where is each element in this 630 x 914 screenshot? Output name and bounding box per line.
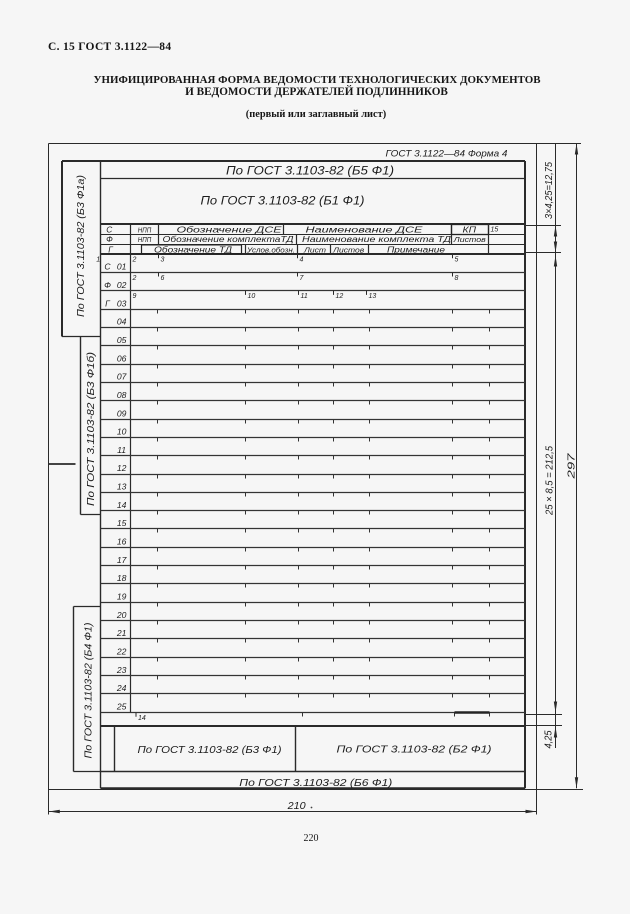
- svg-text:НПП: НПП: [138, 235, 152, 244]
- svg-text:11: 11: [301, 293, 308, 300]
- svg-text:Ф: Ф: [104, 280, 111, 290]
- svg-text:По ГОСТ 3.1103-82 (Б3 Ф1): По ГОСТ 3.1103-82 (Б3 Ф1): [138, 744, 282, 756]
- svg-text:05: 05: [117, 335, 127, 345]
- svg-text:9: 9: [133, 293, 137, 300]
- svg-text:Лист: Лист: [303, 245, 326, 254]
- svg-text:14: 14: [138, 715, 146, 722]
- svg-text:Листов: Листов: [453, 235, 486, 244]
- svg-text:210: 210: [287, 801, 307, 812]
- svg-text:21: 21: [116, 628, 127, 638]
- svg-text:24: 24: [116, 683, 127, 693]
- svg-text:Обозначение ДСЕ: Обозначение ДСЕ: [177, 224, 283, 234]
- svg-text:03: 03: [117, 298, 127, 308]
- svg-text:Г: Г: [105, 298, 111, 308]
- svg-text:С: С: [106, 224, 113, 234]
- svg-text:02: 02: [117, 280, 127, 290]
- svg-text:25 × 8,5 = 212,5: 25 × 8,5 = 212,5: [545, 446, 556, 516]
- svg-text:22: 22: [116, 646, 127, 656]
- svg-text:7: 7: [300, 275, 305, 282]
- svg-text:16: 16: [117, 537, 127, 547]
- svg-text:8: 8: [455, 275, 459, 282]
- svg-text:4: 4: [300, 257, 304, 264]
- svg-text:14: 14: [117, 500, 127, 510]
- svg-text:Обозначение комплектаТД: Обозначение комплектаТД: [163, 235, 295, 244]
- svg-text:С: С: [104, 262, 111, 272]
- svg-text:25: 25: [116, 701, 127, 711]
- svg-text:По ГОСТ 3.1103-82 (Б2 Ф1): По ГОСТ 3.1103-82 (Б2 Ф1): [337, 744, 492, 756]
- svg-text:17: 17: [117, 555, 128, 565]
- svg-text:По ГОСТ 3.1103-82 (Б4 Ф1): По ГОСТ 3.1103-82 (Б4 Ф1): [84, 623, 95, 759]
- svg-text:По ГОСТ 3.1103-82 (Б6 Ф1): По ГОСТ 3.1103-82 (Б6 Ф1): [239, 777, 392, 789]
- svg-text:1: 1: [96, 257, 100, 264]
- svg-text:12: 12: [117, 463, 127, 473]
- svg-text:По ГОСТ 3.1103-82 (Б3 Ф1б): По ГОСТ 3.1103-82 (Б3 Ф1б): [85, 352, 97, 506]
- svg-text:10: 10: [248, 293, 256, 300]
- svg-text:01: 01: [117, 262, 127, 272]
- svg-text:5: 5: [455, 257, 459, 264]
- svg-text:08: 08: [117, 390, 127, 400]
- svg-text:11: 11: [117, 445, 126, 455]
- svg-text:12: 12: [336, 293, 344, 300]
- svg-text:Наименование ДСЕ: Наименование ДСЕ: [306, 224, 424, 234]
- svg-text:Обозначение ТД: Обозначение ТД: [154, 244, 232, 254]
- svg-text:Ф: Ф: [106, 234, 113, 244]
- svg-text:15: 15: [491, 227, 499, 234]
- svg-text:2: 2: [132, 257, 137, 264]
- svg-text:23: 23: [116, 665, 127, 675]
- svg-text:06: 06: [117, 353, 127, 363]
- svg-text:Услов.обозн.: Услов.обозн.: [246, 245, 295, 254]
- svg-text:04: 04: [117, 317, 127, 327]
- svg-text:10: 10: [117, 427, 127, 437]
- svg-text:Наименование комплекта ТД: Наименование комплекта ТД: [302, 235, 452, 244]
- svg-text:По ГОСТ 3.1103-82 (Б5 Ф1): По ГОСТ 3.1103-82 (Б5 Ф1): [226, 166, 394, 178]
- svg-text:20: 20: [116, 610, 127, 620]
- svg-text:15: 15: [117, 518, 127, 528]
- svg-text:3×4,25=12,75: 3×4,25=12,75: [544, 162, 555, 219]
- svg-text:09: 09: [117, 408, 127, 418]
- svg-text:ГОСТ 3.1122—84 Форма 4: ГОСТ 3.1122—84 Форма 4: [386, 149, 508, 160]
- svg-text:19: 19: [117, 591, 127, 601]
- svg-text:13: 13: [369, 293, 377, 300]
- svg-text:КП: КП: [463, 225, 477, 234]
- svg-text:Листов: Листов: [332, 245, 364, 254]
- svg-text:2: 2: [132, 275, 137, 282]
- svg-text:6: 6: [161, 275, 165, 282]
- svg-text:НПП: НПП: [138, 225, 152, 234]
- svg-text:297: 297: [567, 453, 578, 480]
- svg-text:По ГОСТ 3.1103-82 (Б3 Ф1а): По ГОСТ 3.1103-82 (Б3 Ф1а): [76, 175, 87, 317]
- svg-text:Примечание: Примечание: [387, 245, 446, 254]
- svg-text:4,25: 4,25: [544, 730, 555, 748]
- svg-text:Г: Г: [108, 244, 114, 254]
- svg-text:18: 18: [117, 573, 127, 583]
- svg-text:3: 3: [161, 257, 165, 264]
- svg-text:По ГОСТ 3.1103-82 (Б1 Ф1): По ГОСТ 3.1103-82 (Б1 Ф1): [201, 196, 365, 208]
- svg-text:13: 13: [117, 482, 127, 492]
- svg-text:07: 07: [117, 372, 128, 382]
